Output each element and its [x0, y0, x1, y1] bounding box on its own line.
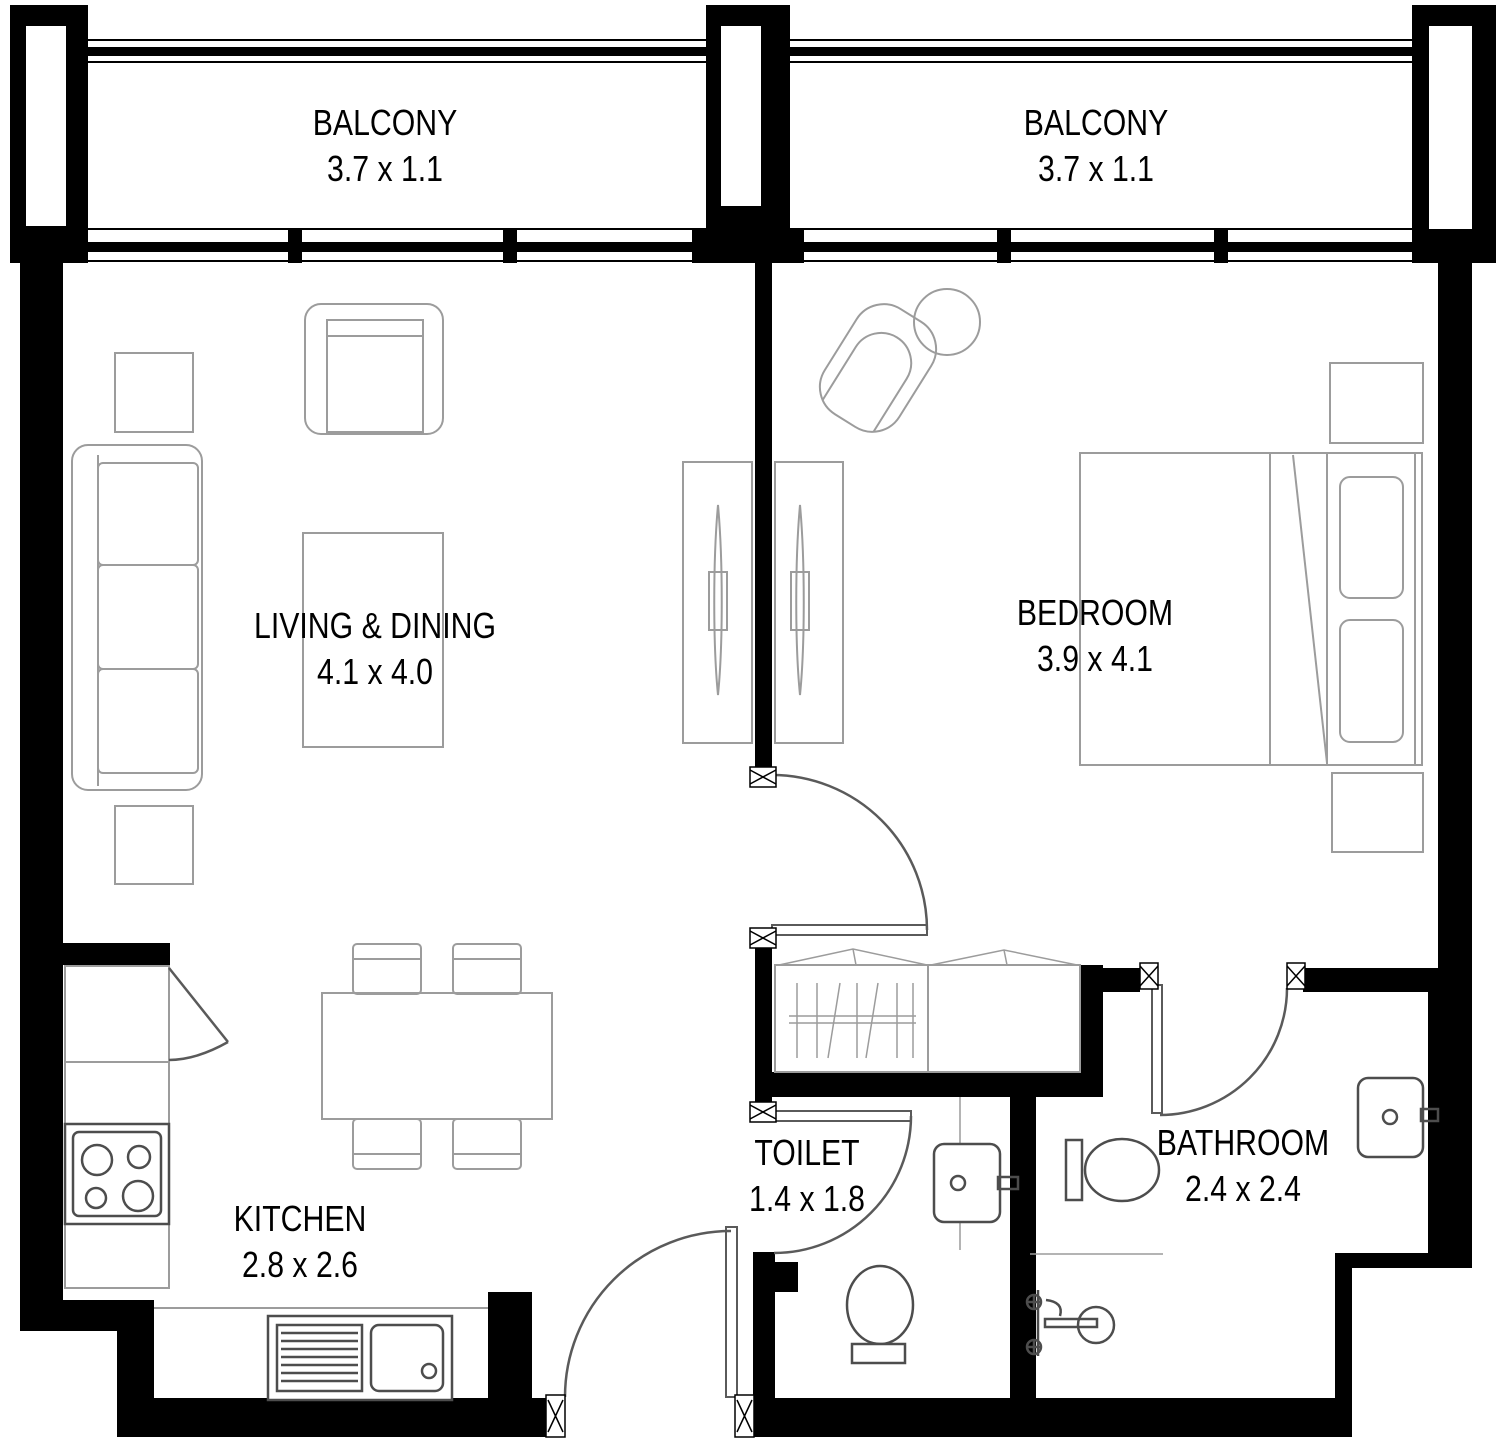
- side-table-top: [115, 353, 193, 432]
- round-side-table: [914, 289, 980, 355]
- toilet-washbasin: [934, 1144, 1018, 1222]
- wall-living-bedroom: [755, 262, 772, 767]
- wall-entry-stub: [488, 1292, 532, 1437]
- kitchen-sink: [268, 1316, 452, 1400]
- room-label-toilet: TOILET 1.4 x 1.8: [749, 1130, 865, 1222]
- room-name: BALCONY: [313, 100, 458, 146]
- floor-plan: BALCONY 3.7 x 1.1 BALCONY 3.7 x 1.1 LIVI…: [0, 0, 1498, 1440]
- nightstand-bottom: [1332, 773, 1423, 852]
- room-label-kitchen: KITCHEN 2.8 x 2.6: [234, 1196, 367, 1288]
- room-dims: 3.7 x 1.1: [313, 146, 458, 192]
- room-dims: 3.9 x 4.1: [1017, 636, 1173, 682]
- wall-bathroom-top-b: [1303, 968, 1438, 992]
- nightstand-top: [1330, 363, 1423, 443]
- tv-unit-bedroom: [775, 462, 843, 743]
- room-label-bedroom: BEDROOM 3.9 x 4.1: [1017, 590, 1173, 682]
- wall-right: [1438, 232, 1472, 1268]
- room-dims: 2.4 x 2.4: [1157, 1166, 1329, 1212]
- window-mullion: [1214, 228, 1228, 263]
- pillow: [1340, 620, 1403, 742]
- shower-arm: [1045, 1319, 1097, 1327]
- pillow: [1340, 477, 1403, 598]
- room-dims: 3.7 x 1.1: [1024, 146, 1169, 192]
- room-name: TOILET: [749, 1130, 865, 1176]
- floor-plan-drawing: [0, 0, 1498, 1440]
- fridge-door-swing: [169, 968, 228, 1060]
- door-jambs: [546, 767, 1305, 1437]
- room-dims: 4.1 x 4.0: [254, 649, 496, 695]
- window-mullion: [997, 228, 1011, 263]
- bedroom-door: [772, 775, 927, 935]
- window-mullion: [790, 228, 804, 263]
- side-table-bottom: [115, 806, 193, 884]
- interior-walls: [753, 262, 1438, 1398]
- balcony-right-railing: [790, 40, 1414, 62]
- columns: [10, 5, 1496, 263]
- room-name: BATHROOM: [1157, 1120, 1329, 1166]
- wardrobe: [775, 949, 1080, 1072]
- kitchen-fridge: [65, 966, 228, 1062]
- shower-hose: [1046, 1300, 1061, 1316]
- sofa: [72, 445, 202, 790]
- wall-closet-right: [1080, 965, 1103, 1097]
- wall-left: [20, 232, 63, 1300]
- room-name: KITCHEN: [234, 1196, 367, 1242]
- hanging-clothes: [797, 983, 913, 1058]
- lounge-chair: [808, 292, 948, 444]
- balcony-left-railing: [85, 40, 706, 62]
- room-dims: 2.8 x 2.6: [234, 1242, 367, 1288]
- dining-chairs: [353, 944, 521, 1169]
- window-mullion: [692, 228, 706, 263]
- room-label-balcony-left: BALCONY 3.7 x 1.1: [313, 100, 458, 192]
- room-dims: 1.4 x 1.8: [749, 1176, 865, 1222]
- kitchen-stove: [65, 1124, 169, 1224]
- window-mullion: [503, 228, 517, 263]
- bathroom-washbasin: [1358, 1078, 1438, 1157]
- room-label-balcony-right: BALCONY 3.7 x 1.1: [1024, 100, 1169, 192]
- room-name: LIVING & DINING: [254, 603, 496, 649]
- room-name: BALCONY: [1024, 100, 1169, 146]
- bathroom-door: [1152, 985, 1287, 1115]
- armchair: [305, 304, 443, 434]
- wall-kitchen-top: [63, 943, 170, 965]
- dining-table: [322, 993, 552, 1119]
- wall-bottom-right: [737, 1398, 1352, 1437]
- room-name: BEDROOM: [1017, 590, 1173, 636]
- room-label-bathroom: BATHROOM 2.4 x 2.4: [1157, 1120, 1329, 1212]
- window-wall-right: [790, 228, 1438, 263]
- toilet-wc: [847, 1266, 913, 1363]
- window-mullion: [288, 228, 302, 263]
- wall-bathroom-top-a: [1103, 968, 1140, 992]
- wall-closet-bottom: [755, 1072, 1103, 1097]
- room-label-living-dining: LIVING & DINING 4.1 x 4.0: [254, 603, 496, 695]
- bathroom-wc: [1066, 1139, 1159, 1201]
- entry-door: [565, 1227, 737, 1397]
- tv-unit-living: [683, 462, 752, 743]
- wall-toilet-bathroom: [1010, 1090, 1036, 1398]
- window-wall-left: [63, 228, 710, 263]
- shower: [1027, 1254, 1163, 1356]
